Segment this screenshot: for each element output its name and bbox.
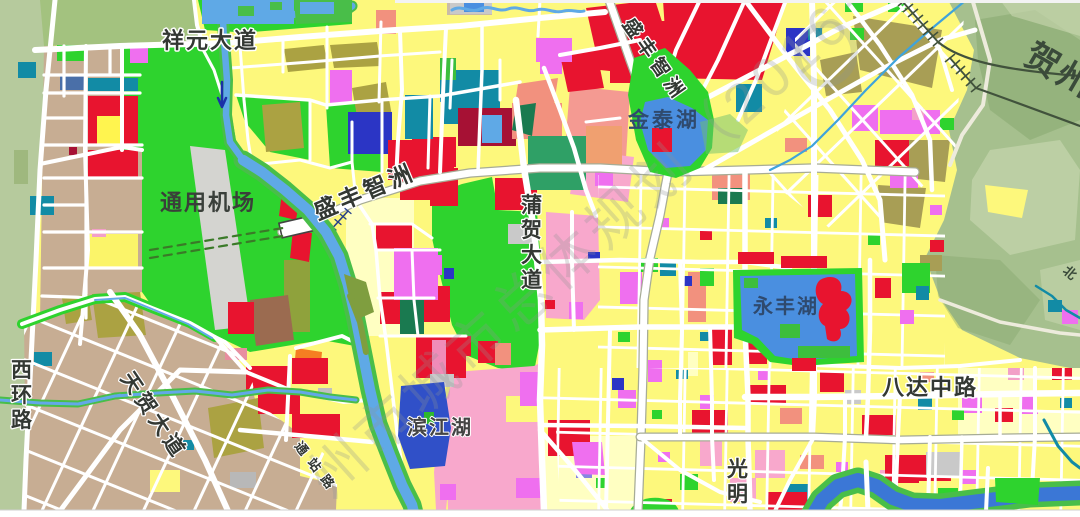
svg-text:通用机场: 通用机场 <box>160 190 256 215</box>
svg-text:金泰湖: 金泰湖 <box>627 108 700 132</box>
svg-text:滨江湖: 滨江湖 <box>407 415 473 439</box>
svg-text:永丰湖: 永丰湖 <box>752 294 819 318</box>
svg-text:明: 明 <box>727 483 748 506</box>
svg-text:道: 道 <box>521 268 542 292</box>
svg-text:蒲: 蒲 <box>521 194 542 217</box>
svg-text:大: 大 <box>521 244 542 267</box>
svg-text:祥元大道: 祥元大道 <box>162 28 258 53</box>
svg-text:环: 环 <box>11 384 32 407</box>
svg-text:贺: 贺 <box>521 219 542 242</box>
svg-text:西: 西 <box>11 359 32 382</box>
svg-text:路: 路 <box>11 408 33 432</box>
svg-text:八达中路: 八达中路 <box>882 375 978 400</box>
svg-text:光: 光 <box>726 458 748 481</box>
